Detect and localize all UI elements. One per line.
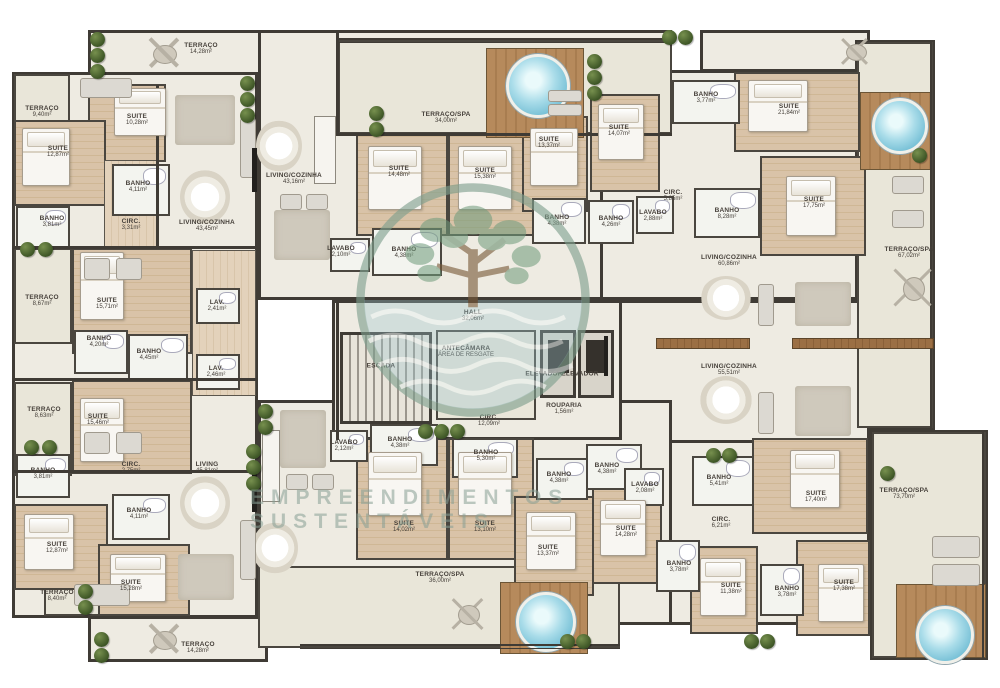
lounge-chair (548, 90, 582, 102)
label-banho: BANHO3,78m² (667, 560, 692, 574)
label-suite: SUITE15,71m² (96, 297, 118, 311)
label-elevador: ELEVADOR (561, 371, 598, 378)
rug (175, 95, 235, 145)
label-escada: ESCADA (367, 363, 396, 370)
label-banho: BANHO4,26m² (599, 215, 624, 229)
armchair (84, 432, 110, 454)
label-suite: SUITE14,48m² (388, 165, 410, 179)
label-suite: SUITE21,84m² (778, 103, 800, 117)
label-circ: CIRC.3,31m² (122, 218, 141, 232)
armchair (280, 194, 302, 210)
label-terraco: TERRAÇO8,40m² (40, 589, 74, 603)
bush (744, 634, 759, 649)
label-suite: SUITE13,37m² (537, 544, 559, 558)
bush (42, 440, 57, 455)
label-living-cozinha: LIVING/COZINHA43,45m² (179, 219, 235, 233)
rug (280, 410, 326, 468)
label-lavabo: LAVABO2,10m² (327, 245, 355, 259)
label-suite: SUITE14,07m² (608, 124, 630, 138)
armchair (306, 194, 328, 210)
label-banho: BANHO3,78m² (775, 585, 800, 599)
bush (880, 466, 895, 481)
balcony-planter (792, 338, 934, 349)
bush (90, 32, 105, 47)
bed (526, 512, 576, 570)
armchair (116, 432, 142, 454)
bush (258, 420, 273, 435)
terrace-table (836, 36, 874, 66)
rug (795, 282, 851, 326)
bush (90, 48, 105, 63)
label-circ: CIRC.6,21m² (712, 516, 731, 530)
label-banho: BANHO4,45m² (137, 348, 162, 362)
label-banho: BANHO3,77m² (694, 91, 719, 105)
loveseat (932, 536, 980, 558)
label-banho: BANHO4,11m² (126, 180, 151, 194)
sofa (240, 520, 256, 580)
label-antecamara: ANTECÂMARAÁREA DE RESGATE (438, 345, 494, 359)
balcony-rail (982, 432, 987, 658)
terrace-table (448, 596, 488, 632)
rug (274, 210, 330, 260)
terrace-table (893, 266, 933, 310)
label-lav: LAV.2,46m² (207, 365, 226, 379)
wall (336, 30, 339, 136)
armchair (116, 258, 142, 280)
label-living-cozinha: LIVING/COZINHA55,51m² (701, 363, 757, 377)
label-terraco-spa: TERRAÇO/SPA36,00m² (415, 571, 464, 585)
label-banho: BANHO3,81m² (40, 215, 65, 229)
rug (178, 554, 234, 600)
lounge-chair (548, 104, 582, 116)
label-suite: SUITE10,28m² (126, 113, 148, 127)
label-banho: BANHO4,38m² (547, 471, 572, 485)
label-suite: SUITE14,28m² (615, 525, 637, 539)
dining-table (180, 476, 230, 530)
label-suite: SUITE14,02m² (393, 520, 415, 534)
label-suite: SUITE12,87m² (47, 145, 69, 159)
armchair (312, 474, 334, 490)
label-banho: BANHO4,38m² (388, 436, 413, 450)
label-banho: BANHO3,81m² (31, 467, 56, 481)
dining-table (180, 170, 230, 224)
label-living-cozinha: LIVING/COZINHA43,16m² (266, 172, 322, 186)
terrace-table (142, 36, 186, 70)
wall (336, 300, 339, 440)
label-suite: SUITE15,46m² (87, 413, 109, 427)
label-suite: SUITE17,40m² (805, 490, 827, 504)
label-terraco-spa: TERRAÇO/SPA73,70m² (879, 487, 928, 501)
elevator-cell (578, 330, 614, 398)
label-banho: BANHO4,11m² (127, 507, 152, 521)
label-elevador: ELEVADOR (525, 371, 562, 378)
bush (369, 106, 384, 121)
label-banho: BANHO4,20m² (87, 335, 112, 349)
dining-table (252, 522, 298, 574)
bush (78, 584, 93, 599)
armchair (892, 176, 924, 194)
bush (94, 648, 109, 663)
bush (760, 634, 775, 649)
label-terraco: TERRAÇO8,67m² (25, 294, 59, 308)
elevator-cell (540, 330, 576, 398)
sofa (758, 392, 774, 434)
label-suite: SUITE12,87m² (46, 541, 68, 555)
sofa (758, 284, 774, 326)
floor-plan: TERRAÇO14,28m² TERRAÇO9,40m² SUITE10,28m… (0, 0, 1000, 688)
kitchen-counter (262, 430, 280, 502)
bush (722, 448, 737, 463)
loveseat (932, 564, 980, 586)
dining-table (256, 120, 302, 172)
bush (38, 242, 53, 257)
jacuzzi (916, 606, 974, 664)
bush (240, 76, 255, 91)
jacuzzi (872, 98, 928, 154)
dining-table (700, 376, 752, 424)
bush (662, 30, 677, 45)
dining-table (700, 276, 752, 320)
label-suite: SUITE15,38m² (474, 167, 496, 181)
label-circ: CIRC.5,85m² (664, 189, 683, 203)
label-suite: SUITE17,38m² (833, 579, 855, 593)
label-terraco: TERRAÇO14,28m² (184, 42, 218, 56)
bush (24, 440, 39, 455)
terrace-sofa (80, 78, 132, 98)
bed (818, 564, 864, 622)
armchair (892, 210, 924, 228)
label-banho: BANHO5,41m² (707, 474, 732, 488)
terrace-table (142, 622, 186, 656)
label-suite: SUITE17,75m² (803, 196, 825, 210)
bush (246, 460, 261, 475)
label-terraco: TERRAÇO8,63m² (27, 406, 61, 420)
bush (587, 54, 602, 69)
bush (258, 404, 273, 419)
bush (434, 424, 449, 439)
rug (795, 386, 851, 436)
balcony-rail (930, 42, 935, 428)
bush (678, 30, 693, 45)
label-lavabo: LAVABO2,88m² (639, 209, 667, 223)
bush (450, 424, 465, 439)
label-terraco: TERRAÇO9,40m² (25, 105, 59, 119)
bush (369, 122, 384, 137)
label-suite: SUITE15,28m² (120, 579, 142, 593)
bush (94, 632, 109, 647)
bush (560, 634, 575, 649)
label-banho: BANHO4,38m² (545, 214, 570, 228)
label-living-cozinha: LIVING/COZINHA60,86m² (701, 254, 757, 268)
label-lavabo: LAVABO2,08m² (631, 481, 659, 495)
bush (20, 242, 35, 257)
tv-panel (252, 148, 257, 192)
bed (368, 452, 422, 516)
label-terraco-spa: TERRAÇO/SPA67,02m² (884, 246, 933, 260)
bush (706, 448, 721, 463)
bush (418, 424, 433, 439)
antechamber-room (436, 330, 536, 420)
label-terraco: TERRAÇO14,28m² (181, 641, 215, 655)
label-lavabo: LAVABO2,12m² (330, 439, 358, 453)
label-rouparia: ROUPARIA1,56m² (546, 402, 582, 416)
label-circ: CIRC.2,75m² (122, 461, 141, 475)
armchair (84, 258, 110, 280)
bush (246, 476, 261, 491)
bush (576, 634, 591, 649)
bush (78, 600, 93, 615)
label-suite: SUITE13,37m² (538, 136, 560, 150)
bush (912, 148, 927, 163)
label-living: LIVING45,81m² (196, 461, 219, 475)
tv-panel (604, 336, 608, 376)
label-lav: LAV.2,41m² (208, 299, 227, 313)
label-banho: BANHO5,30m² (474, 449, 499, 463)
bush (587, 70, 602, 85)
label-hall: HALL32,06m² (462, 309, 484, 323)
balcony-planter (656, 338, 750, 349)
bush (240, 108, 255, 123)
label-suite: SUITE13,10m² (474, 520, 496, 534)
bush (587, 86, 602, 101)
label-banho: BANHO4,38m² (595, 462, 620, 476)
label-suite: SUITE11,38m² (720, 582, 742, 596)
bush (240, 92, 255, 107)
staircase (340, 332, 432, 424)
armchair (286, 474, 308, 490)
bush (90, 64, 105, 79)
label-circ: CIRC.12,09m² (478, 414, 500, 428)
balcony-rail (338, 38, 672, 43)
label-banho: BANHO4,38m² (392, 246, 417, 260)
label-banho: BANHO8,28m² (715, 207, 740, 221)
bush (246, 444, 261, 459)
label-terraco-spa: TERRAÇO/SPA34,00m² (421, 111, 470, 125)
